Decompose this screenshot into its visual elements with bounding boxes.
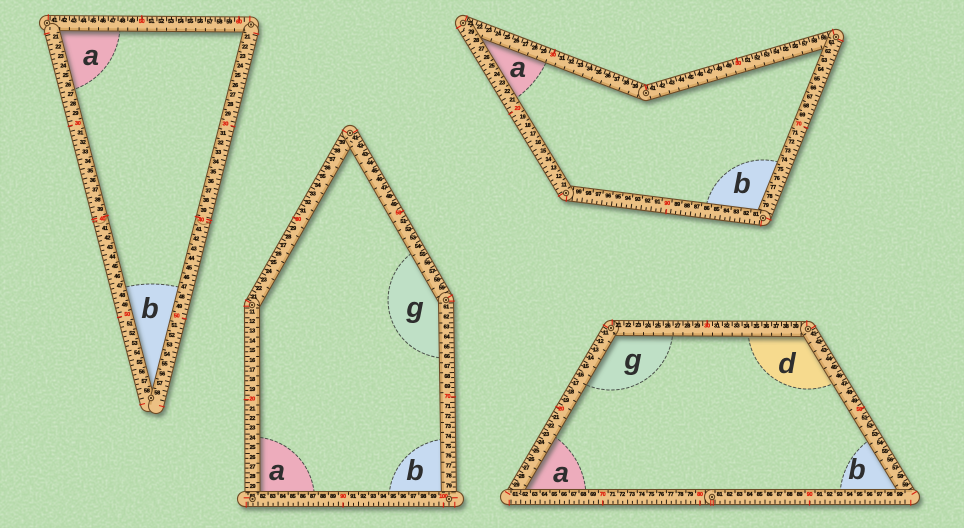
- svg-text:42: 42: [193, 237, 199, 243]
- svg-text:52: 52: [867, 424, 873, 430]
- svg-text:57: 57: [207, 19, 213, 25]
- svg-text:49: 49: [122, 303, 128, 309]
- svg-text:47: 47: [707, 69, 713, 75]
- svg-text:98: 98: [887, 492, 893, 498]
- svg-text:95: 95: [857, 492, 863, 498]
- svg-text:77: 77: [770, 185, 776, 191]
- svg-text:91: 91: [350, 494, 356, 500]
- svg-text:62: 62: [522, 492, 528, 498]
- svg-text:28: 28: [250, 474, 256, 480]
- svg-text:96: 96: [400, 494, 406, 500]
- svg-text:37: 37: [206, 189, 212, 195]
- svg-text:33: 33: [578, 63, 584, 69]
- svg-text:13: 13: [249, 329, 255, 335]
- svg-text:66: 66: [561, 492, 567, 498]
- svg-text:55: 55: [882, 449, 888, 455]
- svg-text:29: 29: [694, 324, 700, 330]
- svg-text:90: 90: [664, 201, 670, 207]
- svg-text:77: 77: [668, 492, 674, 498]
- svg-text:45: 45: [372, 169, 378, 175]
- svg-text:26: 26: [514, 38, 520, 44]
- svg-text:32: 32: [724, 324, 730, 330]
- svg-text:68: 68: [581, 492, 587, 498]
- svg-text:39: 39: [339, 140, 345, 146]
- svg-text:29: 29: [290, 226, 296, 232]
- svg-text:95: 95: [615, 195, 621, 201]
- svg-text:75: 75: [445, 444, 451, 450]
- svg-text:31: 31: [220, 131, 226, 137]
- svg-text:35: 35: [320, 174, 326, 180]
- svg-text:72: 72: [789, 140, 795, 146]
- svg-text:96: 96: [867, 492, 873, 498]
- svg-text:47: 47: [381, 185, 387, 191]
- svg-text:99: 99: [897, 492, 903, 498]
- svg-text:71: 71: [610, 492, 616, 498]
- svg-text:39: 39: [97, 207, 103, 213]
- svg-text:62: 62: [444, 314, 450, 320]
- svg-text:90: 90: [807, 492, 813, 498]
- svg-text:38: 38: [783, 324, 789, 330]
- svg-text:12: 12: [556, 174, 562, 180]
- svg-text:83: 83: [270, 494, 276, 500]
- svg-text:68: 68: [444, 374, 450, 380]
- svg-text:57: 57: [892, 466, 898, 472]
- svg-text:28: 28: [532, 45, 538, 51]
- svg-text:26: 26: [665, 323, 671, 329]
- svg-text:50: 50: [735, 61, 741, 67]
- svg-text:a: a: [269, 455, 285, 487]
- svg-text:28: 28: [519, 474, 525, 480]
- svg-text:41: 41: [650, 86, 656, 92]
- svg-text:43: 43: [362, 152, 368, 158]
- svg-text:23: 23: [543, 432, 549, 438]
- svg-text:63: 63: [444, 324, 450, 330]
- svg-text:23: 23: [486, 28, 492, 34]
- svg-text:26: 26: [250, 455, 256, 461]
- svg-text:b: b: [733, 168, 750, 200]
- svg-text:79: 79: [446, 484, 452, 490]
- svg-text:53: 53: [168, 19, 174, 25]
- svg-text:67: 67: [444, 364, 450, 370]
- svg-text:65: 65: [444, 344, 450, 350]
- svg-text:57: 57: [802, 41, 808, 47]
- svg-text:75: 75: [778, 167, 784, 173]
- svg-text:31: 31: [714, 324, 720, 330]
- svg-text:52: 52: [158, 19, 164, 25]
- svg-text:52: 52: [405, 227, 411, 233]
- svg-text:57: 57: [142, 379, 148, 385]
- svg-text:50: 50: [857, 407, 863, 413]
- svg-text:11: 11: [249, 309, 254, 315]
- svg-text:46: 46: [114, 274, 120, 280]
- svg-text:92: 92: [360, 494, 366, 500]
- svg-text:56: 56: [424, 261, 430, 267]
- svg-text:53: 53: [764, 53, 770, 59]
- svg-text:33: 33: [215, 150, 221, 156]
- svg-text:88: 88: [684, 203, 690, 209]
- svg-text:33: 33: [734, 324, 740, 330]
- svg-text:13: 13: [551, 166, 557, 172]
- svg-text:36: 36: [605, 73, 611, 79]
- svg-text:46: 46: [836, 373, 842, 379]
- svg-text:87: 87: [777, 492, 783, 498]
- svg-text:31: 31: [559, 56, 565, 62]
- svg-text:41: 41: [52, 18, 58, 24]
- svg-text:39: 39: [793, 324, 799, 330]
- svg-text:15: 15: [249, 348, 255, 354]
- svg-text:42: 42: [105, 236, 111, 242]
- svg-text:26: 26: [65, 83, 71, 89]
- svg-text:47: 47: [181, 285, 187, 291]
- svg-text:17: 17: [573, 381, 579, 387]
- svg-text:21: 21: [553, 415, 559, 421]
- svg-text:22: 22: [477, 24, 483, 30]
- svg-text:79: 79: [763, 203, 769, 209]
- svg-text:20: 20: [249, 397, 255, 403]
- svg-text:22: 22: [55, 44, 61, 50]
- svg-text:12: 12: [249, 319, 255, 325]
- svg-text:80: 80: [697, 492, 703, 498]
- svg-text:28: 28: [228, 102, 234, 108]
- svg-text:41: 41: [196, 227, 202, 233]
- svg-text:43: 43: [71, 18, 77, 24]
- svg-text:55: 55: [188, 19, 194, 25]
- svg-text:30: 30: [550, 52, 556, 58]
- svg-text:33: 33: [82, 150, 88, 156]
- svg-text:97: 97: [411, 494, 417, 500]
- svg-text:58: 58: [144, 389, 150, 395]
- svg-text:a: a: [553, 457, 569, 489]
- svg-text:36: 36: [90, 178, 96, 184]
- svg-text:78: 78: [446, 474, 452, 480]
- svg-text:66: 66: [811, 85, 817, 91]
- svg-text:78: 78: [767, 194, 773, 200]
- svg-text:55: 55: [420, 252, 426, 258]
- svg-text:51: 51: [127, 322, 133, 328]
- svg-text:22: 22: [250, 416, 256, 422]
- svg-text:23: 23: [58, 54, 64, 60]
- svg-text:93: 93: [370, 494, 376, 500]
- svg-text:d: d: [778, 348, 796, 380]
- svg-text:46: 46: [184, 275, 190, 281]
- svg-text:29: 29: [541, 49, 547, 55]
- svg-text:72: 72: [619, 492, 625, 498]
- svg-text:48: 48: [179, 294, 185, 300]
- svg-text:53: 53: [167, 342, 173, 348]
- svg-text:29: 29: [73, 111, 79, 117]
- svg-text:a: a: [83, 40, 99, 72]
- svg-text:82: 82: [727, 492, 733, 498]
- svg-text:72: 72: [445, 414, 451, 420]
- svg-text:25: 25: [235, 73, 241, 79]
- svg-text:61: 61: [829, 40, 835, 46]
- svg-text:71: 71: [792, 131, 798, 137]
- svg-text:48: 48: [120, 19, 126, 25]
- svg-text:15: 15: [540, 149, 546, 155]
- svg-text:30: 30: [295, 217, 301, 223]
- svg-text:48: 48: [846, 390, 852, 396]
- svg-text:73: 73: [445, 424, 451, 430]
- svg-text:58: 58: [434, 277, 440, 283]
- svg-text:29: 29: [468, 30, 474, 36]
- svg-text:43: 43: [669, 81, 675, 87]
- svg-text:21: 21: [250, 406, 256, 412]
- svg-text:57: 57: [157, 381, 163, 387]
- svg-text:45: 45: [831, 365, 837, 371]
- svg-text:18: 18: [249, 377, 255, 383]
- svg-text:58: 58: [811, 39, 817, 45]
- svg-text:88: 88: [787, 492, 793, 498]
- svg-text:29: 29: [250, 484, 256, 490]
- svg-text:59: 59: [439, 286, 445, 292]
- svg-text:98: 98: [586, 191, 592, 197]
- svg-text:63: 63: [821, 58, 827, 64]
- svg-text:89: 89: [330, 494, 336, 500]
- svg-text:47: 47: [117, 283, 123, 289]
- svg-text:67: 67: [571, 492, 577, 498]
- svg-text:79: 79: [687, 492, 693, 498]
- svg-text:70: 70: [600, 492, 606, 498]
- svg-text:63: 63: [532, 492, 538, 498]
- svg-text:73: 73: [785, 149, 791, 155]
- svg-text:43: 43: [821, 348, 827, 354]
- svg-text:53: 53: [410, 236, 416, 242]
- svg-text:25: 25: [271, 260, 277, 266]
- svg-text:73: 73: [629, 492, 635, 498]
- svg-text:31: 31: [300, 209, 306, 215]
- svg-text:88: 88: [320, 494, 326, 500]
- svg-text:85: 85: [714, 207, 720, 213]
- svg-text:32: 32: [568, 59, 574, 65]
- svg-text:18: 18: [568, 390, 574, 396]
- svg-text:87: 87: [310, 494, 316, 500]
- svg-text:37: 37: [773, 324, 779, 330]
- svg-text:50: 50: [124, 312, 130, 318]
- svg-text:11: 11: [561, 183, 566, 189]
- svg-text:76: 76: [446, 454, 452, 460]
- svg-text:93: 93: [635, 197, 641, 203]
- svg-text:27: 27: [281, 243, 287, 249]
- svg-text:27: 27: [675, 323, 681, 329]
- svg-text:99: 99: [576, 190, 582, 196]
- svg-text:11: 11: [603, 330, 608, 336]
- svg-text:20: 20: [515, 106, 521, 112]
- svg-text:29: 29: [514, 483, 520, 489]
- svg-text:12: 12: [598, 339, 604, 345]
- svg-text:36: 36: [325, 166, 331, 172]
- svg-text:87: 87: [694, 205, 700, 211]
- svg-text:47: 47: [841, 382, 847, 388]
- svg-text:22: 22: [242, 44, 248, 50]
- svg-text:18: 18: [525, 123, 531, 129]
- svg-text:46: 46: [376, 177, 382, 183]
- svg-text:37: 37: [614, 77, 620, 83]
- svg-text:89: 89: [797, 492, 803, 498]
- svg-text:30: 30: [223, 121, 229, 127]
- svg-text:35: 35: [87, 169, 93, 175]
- svg-text:25: 25: [250, 445, 256, 451]
- svg-text:17: 17: [530, 132, 536, 138]
- svg-text:86: 86: [704, 206, 710, 212]
- svg-text:50: 50: [174, 314, 180, 320]
- svg-text:51: 51: [400, 219, 406, 225]
- svg-text:35: 35: [210, 169, 216, 175]
- svg-text:22: 22: [625, 323, 631, 329]
- svg-text:23: 23: [250, 426, 256, 432]
- svg-text:59: 59: [226, 19, 232, 25]
- svg-text:52: 52: [129, 331, 135, 337]
- svg-text:99: 99: [431, 494, 437, 500]
- svg-text:90: 90: [340, 494, 346, 500]
- svg-text:76: 76: [774, 176, 780, 182]
- svg-text:22: 22: [548, 423, 554, 429]
- svg-text:32: 32: [305, 200, 311, 206]
- svg-text:56: 56: [159, 371, 165, 377]
- svg-text:38: 38: [335, 148, 341, 154]
- svg-text:97: 97: [877, 492, 883, 498]
- svg-text:23: 23: [240, 54, 246, 60]
- svg-text:70: 70: [445, 394, 451, 400]
- svg-text:23: 23: [261, 277, 267, 283]
- svg-text:28: 28: [70, 102, 76, 108]
- svg-text:g: g: [623, 344, 641, 376]
- svg-text:76: 76: [658, 492, 664, 498]
- svg-text:25: 25: [504, 35, 510, 41]
- svg-text:46: 46: [697, 72, 703, 78]
- svg-text:65: 65: [814, 76, 820, 82]
- svg-text:52: 52: [754, 55, 760, 61]
- svg-text:69: 69: [590, 492, 596, 498]
- svg-text:27: 27: [479, 47, 485, 53]
- svg-text:50: 50: [396, 211, 402, 217]
- svg-text:23: 23: [635, 323, 641, 329]
- svg-text:61: 61: [443, 305, 449, 311]
- svg-text:21: 21: [251, 295, 257, 301]
- svg-text:42: 42: [659, 83, 665, 89]
- svg-text:20: 20: [558, 406, 564, 412]
- svg-text:16: 16: [249, 358, 255, 364]
- svg-text:17: 17: [249, 368, 255, 374]
- svg-text:37: 37: [92, 188, 98, 194]
- svg-text:92: 92: [827, 492, 833, 498]
- svg-text:48: 48: [119, 293, 125, 299]
- svg-text:82: 82: [260, 494, 266, 500]
- svg-text:g: g: [405, 292, 423, 324]
- svg-text:49: 49: [176, 304, 182, 310]
- svg-text:89: 89: [674, 202, 680, 208]
- svg-text:32: 32: [80, 140, 86, 146]
- svg-text:59: 59: [902, 483, 908, 489]
- svg-text:39: 39: [632, 84, 638, 90]
- svg-text:22: 22: [504, 89, 510, 95]
- svg-text:27: 27: [524, 466, 530, 472]
- svg-text:25: 25: [534, 449, 540, 455]
- svg-text:43: 43: [191, 246, 197, 252]
- svg-text:19: 19: [249, 387, 255, 393]
- svg-text:48: 48: [716, 67, 722, 73]
- svg-text:78: 78: [678, 492, 684, 498]
- svg-text:68: 68: [803, 103, 809, 109]
- svg-text:38: 38: [95, 197, 101, 203]
- svg-text:43: 43: [107, 245, 113, 251]
- svg-text:35: 35: [596, 70, 602, 76]
- svg-text:21: 21: [245, 35, 251, 41]
- svg-text:36: 36: [208, 179, 214, 185]
- svg-text:77: 77: [446, 464, 452, 470]
- svg-text:97: 97: [596, 192, 602, 198]
- svg-text:27: 27: [250, 465, 256, 471]
- svg-text:49: 49: [726, 64, 732, 70]
- svg-text:27: 27: [230, 92, 236, 98]
- svg-text:13: 13: [593, 347, 599, 353]
- svg-text:62: 62: [825, 49, 831, 55]
- svg-text:53: 53: [132, 341, 138, 347]
- svg-text:69: 69: [800, 113, 806, 119]
- svg-text:93: 93: [837, 492, 843, 498]
- svg-text:58: 58: [217, 19, 223, 25]
- svg-text:82: 82: [743, 211, 749, 217]
- svg-text:27: 27: [68, 92, 74, 98]
- svg-text:56: 56: [139, 369, 145, 375]
- svg-text:15: 15: [583, 364, 589, 370]
- svg-text:55: 55: [783, 47, 789, 53]
- svg-text:41: 41: [811, 331, 817, 337]
- svg-text:69: 69: [445, 384, 451, 390]
- svg-text:26: 26: [232, 83, 238, 89]
- svg-text:56: 56: [887, 457, 893, 463]
- svg-text:16: 16: [578, 373, 584, 379]
- svg-text:81: 81: [717, 492, 723, 498]
- svg-text:55: 55: [162, 362, 168, 368]
- svg-text:51: 51: [172, 323, 178, 329]
- svg-text:42: 42: [357, 144, 363, 150]
- svg-text:21: 21: [510, 98, 516, 104]
- svg-text:51: 51: [745, 58, 751, 64]
- svg-text:b: b: [848, 454, 865, 486]
- svg-text:81: 81: [753, 212, 759, 218]
- svg-text:85: 85: [290, 494, 296, 500]
- svg-text:48: 48: [386, 194, 392, 200]
- svg-text:28: 28: [685, 324, 691, 330]
- svg-text:46: 46: [100, 19, 106, 25]
- svg-text:35: 35: [754, 324, 760, 330]
- svg-text:32: 32: [218, 141, 224, 147]
- svg-text:38: 38: [623, 80, 629, 86]
- svg-text:71: 71: [445, 404, 451, 410]
- svg-text:b: b: [141, 293, 158, 325]
- svg-text:22: 22: [256, 286, 262, 292]
- svg-text:70: 70: [796, 122, 802, 128]
- svg-text:37: 37: [330, 157, 336, 163]
- svg-text:49: 49: [391, 202, 397, 208]
- svg-text:23: 23: [499, 81, 505, 87]
- svg-text:51: 51: [149, 19, 155, 25]
- svg-text:49: 49: [129, 19, 135, 25]
- svg-text:41: 41: [102, 226, 108, 232]
- svg-text:96: 96: [605, 193, 611, 199]
- svg-text:86: 86: [300, 494, 306, 500]
- svg-text:b: b: [406, 455, 423, 487]
- svg-text:75: 75: [649, 492, 655, 498]
- svg-text:26: 26: [276, 252, 282, 258]
- svg-text:39: 39: [201, 208, 207, 214]
- svg-text:58: 58: [897, 474, 903, 480]
- svg-text:45: 45: [90, 18, 96, 24]
- svg-text:45: 45: [688, 75, 694, 81]
- svg-text:41: 41: [352, 135, 358, 141]
- svg-text:25: 25: [655, 323, 661, 329]
- svg-text:26: 26: [484, 55, 490, 61]
